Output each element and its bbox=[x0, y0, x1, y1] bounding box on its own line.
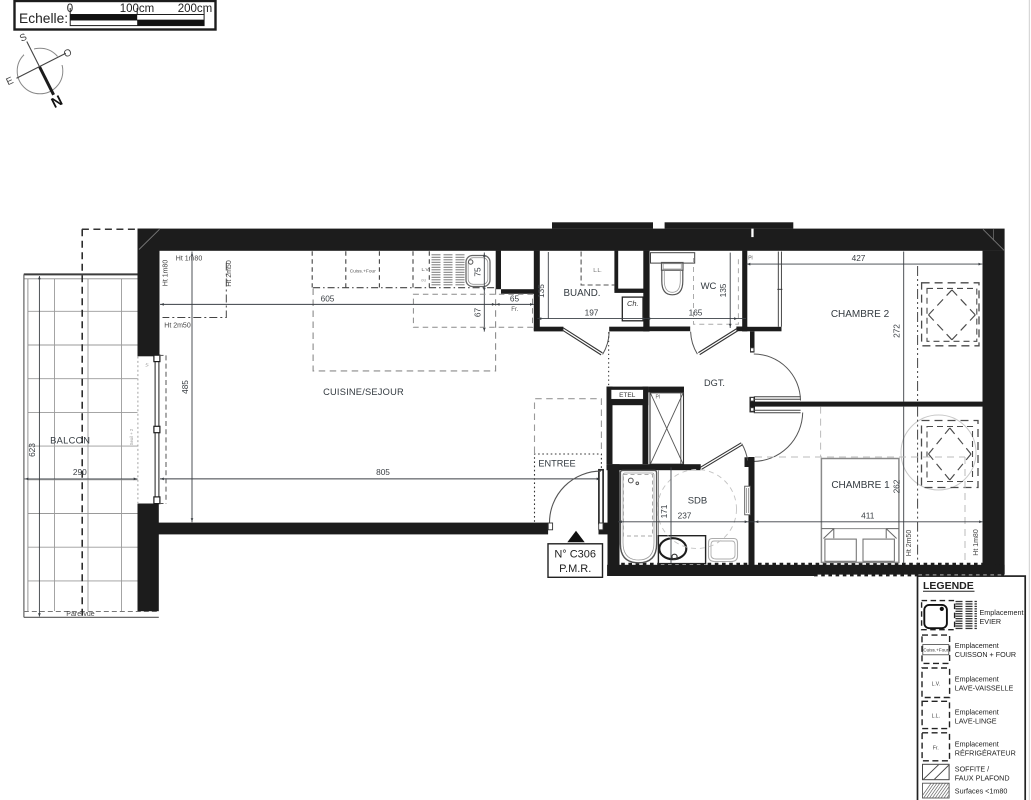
svg-text:SDB: SDB bbox=[688, 496, 708, 507]
svg-text:Ht 2m50: Ht 2m50 bbox=[906, 530, 913, 557]
svg-text:CUISINE/SEJOUR: CUISINE/SEJOUR bbox=[323, 387, 404, 397]
svg-text:237: 237 bbox=[678, 511, 692, 521]
svg-text:Pare-vue: Pare-vue bbox=[66, 611, 95, 618]
svg-text:Ht 1m80: Ht 1m80 bbox=[176, 256, 203, 263]
svg-text:L.V.: L.V. bbox=[932, 681, 940, 687]
svg-text:WC: WC bbox=[701, 281, 717, 292]
svg-text:Vr: Vr bbox=[144, 362, 149, 367]
svg-text:411: 411 bbox=[861, 511, 875, 521]
svg-text:ou: ou bbox=[421, 278, 427, 283]
svg-text:623: 623 bbox=[27, 443, 37, 457]
svg-text:Ht 2m50: Ht 2m50 bbox=[164, 323, 191, 330]
svg-text:200cm: 200cm bbox=[178, 3, 213, 15]
svg-text:Ch.: Ch. bbox=[627, 299, 639, 308]
svg-text:EVIER: EVIER bbox=[980, 617, 1002, 626]
svg-text:Ht 1m80: Ht 1m80 bbox=[163, 260, 170, 287]
svg-text:805: 805 bbox=[376, 467, 390, 477]
svg-text:DGT.: DGT. bbox=[704, 378, 725, 388]
svg-text:N° C306: N° C306 bbox=[554, 548, 596, 560]
svg-text:Emplacement: Emplacement bbox=[955, 641, 999, 650]
svg-text:BUAND.: BUAND. bbox=[563, 288, 600, 299]
svg-text:Ht 2m50: Ht 2m50 bbox=[226, 260, 233, 287]
svg-text:Emplacement: Emplacement bbox=[955, 674, 999, 683]
svg-text:Seuil + 2: Seuil + 2 bbox=[129, 428, 134, 445]
svg-text:485: 485 bbox=[180, 380, 190, 394]
svg-text:Emplacement: Emplacement bbox=[980, 608, 1024, 617]
svg-text:BALCON: BALCON bbox=[50, 436, 90, 446]
svg-text:CHAMBRE 1: CHAMBRE 1 bbox=[831, 480, 890, 491]
svg-text:CHAMBRE 2: CHAMBRE 2 bbox=[831, 309, 890, 320]
svg-text:Echelle:: Echelle: bbox=[19, 11, 68, 26]
svg-text:135: 135 bbox=[536, 284, 546, 298]
svg-text:290: 290 bbox=[73, 467, 87, 477]
svg-text:165: 165 bbox=[689, 307, 703, 317]
svg-text:Fr.: Fr. bbox=[511, 307, 518, 313]
svg-text:CUISSON + FOUR: CUISSON + FOUR bbox=[955, 650, 1016, 659]
svg-text:197: 197 bbox=[585, 307, 599, 317]
svg-text:SOFFITE /: SOFFITE / bbox=[955, 765, 989, 774]
svg-text:262: 262 bbox=[892, 479, 902, 493]
svg-text:100cm: 100cm bbox=[120, 3, 155, 15]
svg-text:Fr.: Fr. bbox=[933, 745, 939, 751]
svg-text:L.L.: L.L. bbox=[932, 714, 940, 720]
svg-text:L.L.: L.L. bbox=[593, 268, 601, 274]
svg-text:Surfaces <1m80: Surfaces <1m80 bbox=[955, 787, 1008, 796]
svg-text:272: 272 bbox=[892, 324, 902, 338]
svg-text:135: 135 bbox=[718, 283, 728, 297]
svg-text:171: 171 bbox=[659, 504, 669, 518]
svg-text:Ht 1m80: Ht 1m80 bbox=[973, 529, 980, 556]
svg-text:Emplacement: Emplacement bbox=[955, 708, 999, 717]
svg-text:ETEL: ETEL bbox=[619, 392, 636, 399]
svg-text:RÉFRIGÉRATEUR: RÉFRIGÉRATEUR bbox=[955, 749, 1016, 758]
svg-text:ENTREE: ENTREE bbox=[538, 458, 575, 468]
svg-text:75: 75 bbox=[472, 267, 482, 277]
svg-text:LEGENDE: LEGENDE bbox=[923, 580, 974, 592]
svg-text:Cuiss.+Four: Cuiss.+Four bbox=[350, 269, 376, 275]
svg-text:LAVE-LINGE: LAVE-LINGE bbox=[955, 717, 997, 726]
svg-text:Cuiss.+Four: Cuiss.+Four bbox=[923, 648, 948, 653]
svg-text:FAUX PLAFOND: FAUX PLAFOND bbox=[955, 773, 1010, 782]
svg-text:0: 0 bbox=[67, 3, 73, 15]
svg-text:LAVE-VAISSELLE: LAVE-VAISSELLE bbox=[955, 684, 1014, 693]
svg-text:L.V.: L.V. bbox=[421, 267, 429, 273]
svg-text:65: 65 bbox=[510, 294, 520, 304]
svg-text:Pl: Pl bbox=[656, 395, 660, 401]
svg-text:Emplacement: Emplacement bbox=[955, 739, 999, 748]
svg-text:605: 605 bbox=[321, 294, 335, 304]
svg-text:Pl: Pl bbox=[748, 256, 752, 262]
svg-text:427: 427 bbox=[852, 253, 866, 263]
svg-text:P.M.R.: P.M.R. bbox=[559, 563, 591, 575]
svg-text:67: 67 bbox=[472, 308, 482, 318]
